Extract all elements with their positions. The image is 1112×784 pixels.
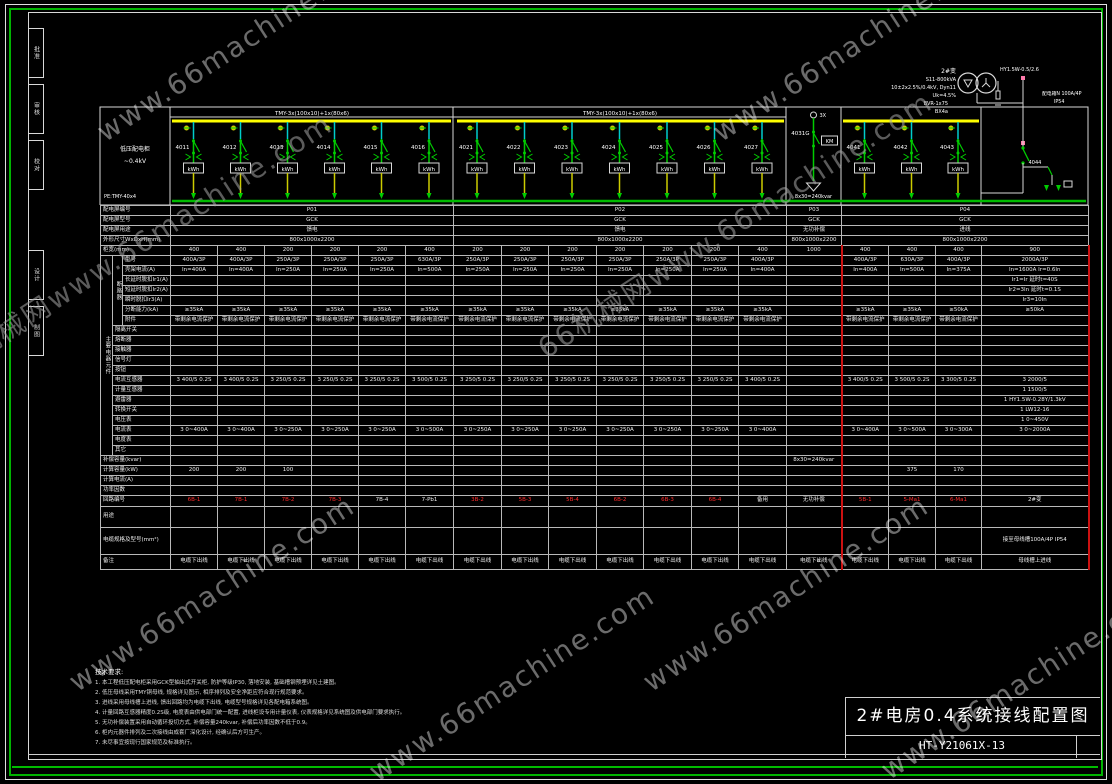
- table-cell: [644, 436, 692, 446]
- table-cell: 200: [644, 246, 692, 256]
- table-cell: [842, 346, 889, 356]
- table-cell: 400: [739, 246, 787, 256]
- table-cell: 主要电器元件: [101, 256, 113, 456]
- table-cell: [597, 416, 644, 426]
- table-cell: 7-Pb1: [406, 496, 454, 507]
- table-cell: [597, 446, 644, 456]
- table-cell: [787, 436, 842, 446]
- table-cell: 转换开关: [113, 406, 171, 416]
- table-cell: [787, 296, 842, 306]
- table-cell: 400A/3P: [171, 256, 218, 266]
- table-cell: [787, 266, 842, 276]
- drawing-element: HY1.5W-0.5/2.6: [1000, 67, 1039, 73]
- table-cell: [218, 416, 265, 426]
- table-cell: [787, 426, 842, 436]
- notes-title: 技术要求:: [95, 666, 565, 676]
- table-cell: ≥35kA: [597, 306, 644, 316]
- table-cell: 3B-2: [454, 496, 502, 507]
- drawing-element: [427, 193, 432, 199]
- table-cell: [312, 476, 359, 486]
- table-cell: 附件: [123, 316, 171, 326]
- table-cell: [265, 286, 312, 296]
- table-cell: [739, 436, 787, 446]
- table-cell: [218, 366, 265, 376]
- table-cell: [597, 276, 644, 286]
- table-cell: 250A/3P: [549, 256, 597, 266]
- table-cell: [936, 446, 982, 456]
- table-cell: [842, 416, 889, 426]
- table-cell: [549, 446, 597, 456]
- table-cell: [502, 476, 549, 486]
- table-cell: 630A/3P: [406, 256, 454, 266]
- drawing-element: [476, 140, 479, 143]
- table-cell: [739, 286, 787, 296]
- feeder-4016: 4016kWh: [411, 122, 439, 199]
- table-cell: [549, 296, 597, 306]
- table-cell: [312, 286, 359, 296]
- table-cell: [549, 486, 597, 496]
- table-cell: 带剩余电流保护: [171, 316, 218, 326]
- table-cell: [787, 366, 842, 376]
- table-cell: [265, 507, 312, 528]
- table-cell: 1 0~450V: [982, 416, 1089, 426]
- table-cell: [889, 276, 936, 286]
- table-cell: [502, 386, 549, 396]
- table-cell: [936, 356, 982, 366]
- table-row: 柜宽(mm)4004002002002004002002002002002002…: [101, 246, 1089, 256]
- drawing-element: [958, 73, 978, 93]
- cad-sheet: 批准审核校对设计制图 www.66machine.comwww.66machin…: [0, 0, 1112, 784]
- table-cell: 备注: [101, 555, 171, 570]
- drawing-element: ~0.4kV: [124, 158, 147, 165]
- table-cell: [502, 276, 549, 286]
- table-cell: [597, 396, 644, 406]
- table-cell: [406, 528, 454, 555]
- drawing-element: [380, 152, 383, 155]
- table-cell: 隔离开关: [113, 326, 171, 336]
- table-cell: [218, 346, 265, 356]
- table-cell: ≥35kA: [692, 306, 739, 316]
- table-cell: 母线槽上进线: [982, 555, 1089, 570]
- table-cell: [787, 406, 842, 416]
- table-cell: [982, 436, 1089, 446]
- table-cell: [502, 326, 549, 336]
- table-cell: In=250A: [692, 266, 739, 276]
- drawing-title: 2#电房0.4系统接线配置图: [848, 701, 1098, 726]
- table-cell: In=400A: [842, 266, 889, 276]
- table-row: 配电屏型号GCKGCKGCKGCK: [101, 216, 1089, 226]
- titleblock-hline-top: [845, 697, 1100, 698]
- table-cell: [359, 446, 406, 456]
- table-cell: [889, 386, 936, 396]
- table-cell: 电流表: [113, 426, 171, 436]
- table-cell: 7B-1: [218, 496, 265, 507]
- table-cell: [739, 446, 787, 456]
- drawing-element: [288, 141, 294, 152]
- drawing-element: [754, 154, 759, 160]
- table-cell: [218, 486, 265, 496]
- table-cell: [739, 346, 787, 356]
- table-cell: [692, 386, 739, 396]
- drawing-element: 4044: [1029, 160, 1042, 166]
- drawing-element: PE:TMY-40x4: [104, 194, 136, 200]
- table-cell: [739, 507, 787, 528]
- drawing-element: [1056, 185, 1061, 191]
- table-cell: [218, 356, 265, 366]
- table-cell: 3 0~500A: [406, 426, 454, 436]
- drawing-element: kWh: [187, 167, 200, 173]
- table-cell: [842, 296, 889, 306]
- table-cell: [597, 507, 644, 528]
- drawing-element: [286, 140, 289, 143]
- table-row: 电流表3 0~400A3 0~400A3 0~250A3 0~250A3 0~2…: [101, 426, 1089, 436]
- table-cell: [218, 296, 265, 306]
- table-cell: P04: [842, 206, 1089, 216]
- drawing-element: [612, 154, 617, 160]
- drawing-element: [863, 152, 866, 155]
- table-cell: [265, 456, 312, 466]
- table-cell: [549, 528, 597, 555]
- table-cell: 无功补偿: [787, 226, 842, 236]
- table-cell: 3 0~250A: [359, 426, 406, 436]
- table-row: 信号灯: [101, 356, 1089, 366]
- table-cell: 3 0~250A: [312, 426, 359, 436]
- table-cell: [312, 336, 359, 346]
- table-cell: [889, 486, 936, 496]
- table-cell: [359, 466, 406, 476]
- table-cell: [406, 486, 454, 496]
- drawing-element: [385, 154, 390, 160]
- table-cell: Ir1=Ir 延时t=40S: [982, 276, 1089, 286]
- table-cell: 配电屏型号: [101, 216, 171, 226]
- drawing-number: HT-Y21061X-13: [848, 739, 1076, 752]
- table-cell: 带剩余电流保护: [359, 316, 406, 326]
- table-cell: 3 0~400A: [739, 426, 787, 436]
- table-cell: [265, 386, 312, 396]
- note-line: 5. 无功补偿装置采用自动循环投切方式, 补偿容量240kvar, 补偿后功率因…: [95, 718, 565, 728]
- table-cell: [597, 466, 644, 476]
- table-cell: 进线: [842, 226, 1089, 236]
- table-cell: 3 300/5 0.2S: [936, 376, 982, 386]
- strip-cell: 审核: [28, 84, 44, 134]
- table-cell: [502, 507, 549, 528]
- table-cell: 200: [549, 246, 597, 256]
- drawing-element: [194, 141, 200, 152]
- table-cell: [312, 326, 359, 336]
- table-cell: 200: [171, 466, 218, 476]
- drawing-element: [868, 154, 873, 160]
- drawing-element: [571, 152, 574, 155]
- table-cell: [502, 416, 549, 426]
- table-cell: [454, 486, 502, 496]
- table-cell: Ir2=3In 延时t=0.1S: [982, 286, 1089, 296]
- table-cell: ≥35kA: [359, 306, 406, 316]
- table-cell: 800x1000x2200: [787, 236, 842, 246]
- config-table: 配电屏编号P01P02P03P04配电屏型号GCKGCKGCKGCK配电屏用途馈…: [100, 205, 1090, 570]
- table-cell: [359, 286, 406, 296]
- table-cell: 电缆下出线: [265, 555, 312, 570]
- table-cell: 250A/3P: [359, 256, 406, 266]
- table-cell: 接至母线槽100A/4P IP54: [982, 528, 1089, 555]
- table-cell: 630A/3P: [889, 256, 936, 266]
- table-cell: [359, 276, 406, 286]
- table-cell: 电缆下出线: [842, 555, 889, 570]
- table-cell: [549, 406, 597, 416]
- table-cell: 200: [312, 246, 359, 256]
- table-cell: [787, 446, 842, 456]
- table-cell: [549, 416, 597, 426]
- table-cell: 计算容量(kW): [101, 466, 171, 476]
- drawing-element: [429, 141, 435, 152]
- table-cell: 1 1500/5: [982, 386, 1089, 396]
- table-cell: P02: [454, 206, 787, 216]
- table-cell: [406, 456, 454, 466]
- drawing-element: [617, 193, 622, 199]
- table-cell: [454, 528, 502, 555]
- table-cell: 1000: [787, 246, 842, 256]
- table-cell: 3 250/5 0.2S: [549, 376, 597, 386]
- table-cell: 800x1000x2200: [454, 236, 787, 246]
- table-cell: [502, 528, 549, 555]
- strip-cell: 校对: [28, 140, 44, 190]
- table-cell: [406, 436, 454, 446]
- table-cell: [171, 507, 218, 528]
- table-cell: [936, 326, 982, 336]
- table-cell: 800x1000x2200: [842, 236, 1089, 246]
- table-cell: [644, 466, 692, 476]
- drawing-element: [956, 193, 961, 199]
- drawing-element: [380, 140, 383, 143]
- table-cell: Ir3=10In: [982, 296, 1089, 306]
- table-cell: 带剩余电流保护: [936, 316, 982, 326]
- table-cell: [359, 346, 406, 356]
- table-cell: [936, 507, 982, 528]
- drawing-element: [332, 193, 337, 199]
- drawing-element: 4027: [744, 145, 758, 151]
- table-cell: [739, 528, 787, 555]
- drawing-element: 4031G: [791, 131, 809, 137]
- table-cell: [644, 456, 692, 466]
- drawing-element: [525, 141, 531, 152]
- table-cell: 电缆下出线: [889, 555, 936, 570]
- table-row: 转换开关1 LW12-16: [101, 406, 1089, 416]
- table-cell: [265, 416, 312, 426]
- table-cell: [842, 486, 889, 496]
- drawing-element: [659, 154, 664, 160]
- table-cell: 250A/3P: [454, 256, 502, 266]
- feeder-4024: 4024kWh: [602, 122, 630, 199]
- table-row: 回路编号6B-17B-17B-27B-37B-47-Pb13B-25B-35B-…: [101, 496, 1089, 507]
- table-cell: [787, 396, 842, 406]
- drawing-element: [910, 140, 913, 143]
- table-row: 补偿容量(kvar)8x30=240kvar: [101, 456, 1089, 466]
- table-cell: [597, 326, 644, 336]
- table-cell: 3 0~250A: [549, 426, 597, 436]
- drawing-element: TMY-3x(100x10)+1x(80x6): [274, 111, 349, 117]
- table-cell: [359, 336, 406, 346]
- table-cell: [502, 346, 549, 356]
- table-cell: [936, 386, 982, 396]
- table-cell: [218, 286, 265, 296]
- table-cell: [265, 336, 312, 346]
- table-cell: [936, 286, 982, 296]
- table-cell: [936, 476, 982, 486]
- table-cell: 分断能力(kA): [123, 306, 171, 316]
- note-line: 3. 进线采用母线槽上进线, 馈出回路均为电缆下出线, 电缆型号规格详见各配电箱…: [95, 698, 565, 708]
- drawing-element: [996, 91, 1000, 99]
- drawing-element: [286, 152, 289, 155]
- table-cell: [312, 446, 359, 456]
- table-cell: [359, 386, 406, 396]
- table-cell: [359, 396, 406, 406]
- table-cell: [312, 456, 359, 466]
- table-cell: [549, 276, 597, 286]
- drawing-element: kWh: [281, 167, 294, 173]
- table-cell: [359, 436, 406, 446]
- drawing-element: kWh: [518, 167, 531, 173]
- table-cell: [692, 528, 739, 555]
- table-cell: [265, 396, 312, 406]
- table-cell: [549, 286, 597, 296]
- table-cell: [406, 396, 454, 406]
- table-cell: 带剩余电流保护: [644, 316, 692, 326]
- feeder-4021: 4021kWh: [459, 122, 487, 199]
- table-cell: [739, 396, 787, 406]
- table-cell: [692, 286, 739, 296]
- note-line: 4. 计量回路互感器精度0.2S级, 电度表由供电部门统一配置, 进线柜设专用计…: [95, 708, 565, 718]
- table-cell: In=250A: [597, 266, 644, 276]
- table-cell: [218, 456, 265, 466]
- table-cell: 400A/3P: [739, 256, 787, 266]
- table-row: 其它: [101, 446, 1089, 456]
- table-cell: [597, 436, 644, 446]
- table-cell: P03: [787, 206, 842, 216]
- table-cell: [842, 466, 889, 476]
- table-cell: 250A/3P: [692, 256, 739, 266]
- drawing-element: [291, 154, 296, 160]
- table-cell: [842, 406, 889, 416]
- table-cell: 带剩余电流保护: [597, 316, 644, 326]
- table-cell: [692, 276, 739, 286]
- table-cell: 3 0~250A: [597, 426, 644, 436]
- table-cell: 200: [692, 246, 739, 256]
- table-cell: [889, 346, 936, 356]
- table-cell: [739, 356, 787, 366]
- drawing-element: kWh: [661, 167, 674, 173]
- table-row: 短延时脱扣Ir2(A)Ir2=3In 延时t=0.1S: [101, 286, 1089, 296]
- table-cell: [597, 336, 644, 346]
- drawing-element: [713, 152, 716, 155]
- table-cell: [787, 326, 842, 336]
- drawing-element: [909, 193, 914, 199]
- table-cell: [406, 276, 454, 286]
- table-row: 长延时脱扣Ir1(A)Ir1=Ir 延时t=40S: [101, 276, 1089, 286]
- table-cell: 3 500/5 0.2S: [406, 376, 454, 386]
- table-cell: [936, 296, 982, 306]
- drawing-element: 4022: [507, 145, 521, 151]
- drawing-element: [244, 154, 249, 160]
- table-cell: 200: [454, 246, 502, 256]
- drawing-element: [285, 193, 290, 199]
- drawing-element: IP54: [1054, 99, 1064, 105]
- table-cell: [502, 336, 549, 346]
- table-cell: 无功补偿: [787, 496, 842, 507]
- table-cell: 馈电: [171, 226, 454, 236]
- table-cell: 接触器: [113, 346, 171, 356]
- table-row: 计量互感器1 1500/5: [101, 386, 1089, 396]
- table-cell: 5B-4: [549, 496, 597, 507]
- table-cell: [842, 528, 889, 555]
- drawing-element: [958, 141, 964, 152]
- table-cell: [889, 336, 936, 346]
- table-cell: [692, 466, 739, 476]
- table-cell: 电度表: [113, 436, 171, 446]
- table-cell: 3 250/5 0.2S: [692, 376, 739, 386]
- drawing-element: [618, 152, 621, 155]
- table-cell: [312, 436, 359, 446]
- table-cell: [171, 446, 218, 456]
- table-cell: [889, 286, 936, 296]
- table-cell: 400A/3P: [842, 256, 889, 266]
- table-cell: 170: [936, 466, 982, 476]
- feeder-4027: 4027kWh: [744, 122, 772, 199]
- table-cell: In=500A: [406, 266, 454, 276]
- table-cell: 带剩余电流保护: [692, 316, 739, 326]
- table-cell: ≥50kA: [982, 306, 1089, 316]
- drawing-element: [762, 141, 768, 152]
- table-cell: 电缆下出线: [692, 555, 739, 570]
- table-cell: 带剩余电流保护: [218, 316, 265, 326]
- table-row: 用途: [101, 507, 1089, 528]
- table-cell: ≥35kA: [454, 306, 502, 316]
- table-cell: [502, 446, 549, 456]
- table-cell: [218, 528, 265, 555]
- drawing-element: [910, 152, 913, 155]
- feeder-4014: 4014kWh: [317, 122, 345, 199]
- table-cell: [692, 296, 739, 306]
- table-cell: [644, 276, 692, 286]
- drawing-element: [192, 152, 195, 155]
- table-cell: 3 2000/5: [982, 376, 1089, 386]
- table-row: 配电屏编号P01P02P03P04: [101, 206, 1089, 216]
- schematic-drawing: TMY-3x(100x10)+1x(80x6)TMY-3x(100x10)+1x…: [90, 35, 1100, 205]
- table-cell: 3 400/5 0.2S: [171, 376, 218, 386]
- table-cell: 电缆下出线: [406, 555, 454, 570]
- feeder-4013: 4013kWh: [270, 122, 298, 199]
- table-cell: [454, 276, 502, 286]
- notes-lines: 1. 本工程低压配电柜采用GCK型抽出式开关柜, 防护等级IP30, 落地安装,…: [95, 678, 565, 748]
- drawing-element: [807, 183, 821, 191]
- table-cell: [787, 507, 842, 528]
- table-cell: In=400A: [218, 266, 265, 276]
- table-cell: 7B-2: [265, 496, 312, 507]
- drawing-element: [570, 193, 575, 199]
- table-cell: [171, 396, 218, 406]
- drawing-element: 4015: [364, 145, 378, 151]
- table-cell: [787, 528, 842, 555]
- table-cell: [502, 436, 549, 446]
- table-cell: [982, 507, 1089, 528]
- table-cell: [406, 386, 454, 396]
- table-cell: [787, 286, 842, 296]
- table-cell: ≥35kA: [889, 306, 936, 316]
- table-cell: [692, 336, 739, 346]
- table-cell: [692, 396, 739, 406]
- drawing-element: [571, 140, 574, 143]
- table-cell: GCK: [454, 216, 787, 226]
- table-cell: 250A/3P: [312, 256, 359, 266]
- drawing-element: [957, 140, 960, 143]
